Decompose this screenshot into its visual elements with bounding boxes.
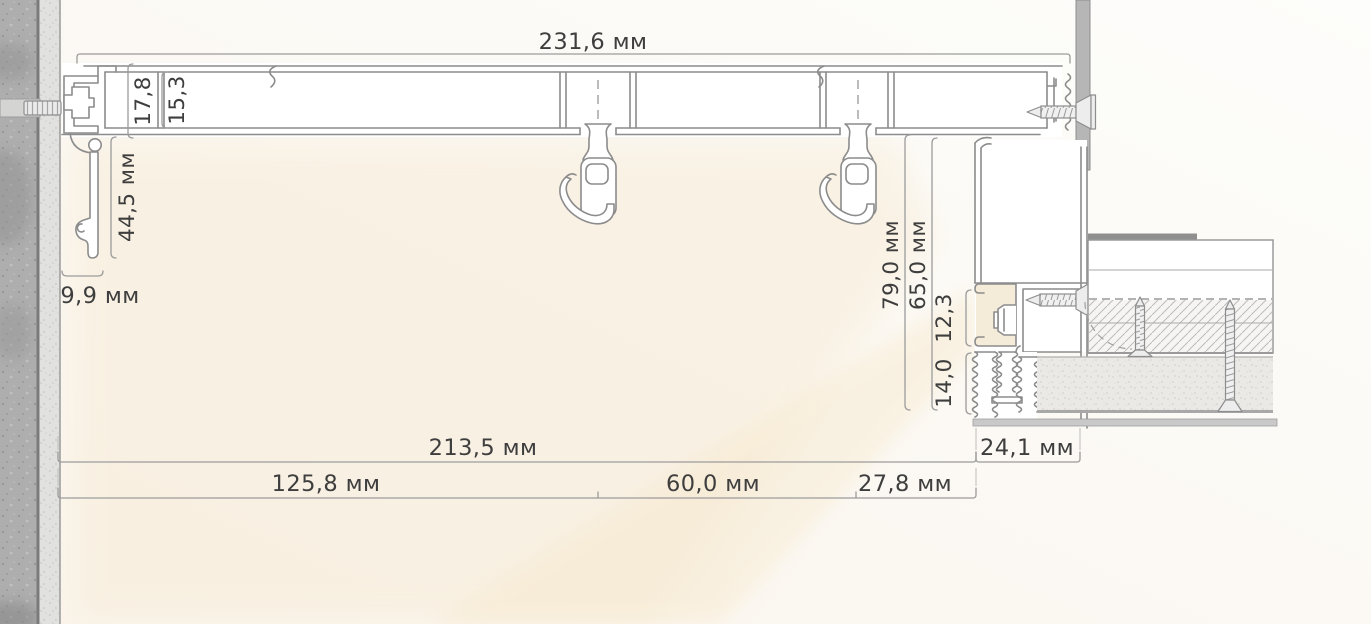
dim-right-drop-outer: 79,0 мм [879, 220, 904, 310]
wall-anchor [0, 99, 61, 117]
curtain-track-profile [62, 63, 1062, 137]
led-niche [975, 284, 1016, 346]
dim-lower-trim-height: 14,0 [932, 358, 957, 407]
dim-span-right: 27,8 мм [858, 471, 952, 497]
dim-soffit-width: 24,1 мм [980, 435, 1074, 461]
dim-span-mid: 60,0 мм [666, 471, 760, 497]
led-module [994, 305, 1016, 335]
bottom-flange [973, 419, 1277, 426]
batten-hatch [1089, 300, 1272, 352]
dim-span-left: 125,8 мм [272, 471, 381, 497]
dim-right-drop-inner: 65,0 мм [906, 220, 931, 310]
ceiling-box [1085, 234, 1273, 354]
dim-bottom-span-total: 213,5 мм [429, 435, 538, 461]
exterior-wall [0, 0, 60, 624]
dim-wall-trim-width: 9,9 мм [60, 283, 139, 309]
technical-drawing-canvas: 231,6 мм 17,8 15,3 44,5 мм 9,9 мм 79,0 м… [0, 0, 1371, 624]
plaster-layer [40, 0, 61, 624]
dim-track-total-width: 231,6 мм [539, 29, 648, 55]
dim-track-height-outer: 17,8 [131, 76, 156, 125]
dim-led-niche-height: 12,3 [932, 293, 957, 342]
dim-track-height-inner: 15,3 [165, 75, 190, 124]
section-drawing: 231,6 мм 17,8 15,3 44,5 мм 9,9 мм 79,0 м… [0, 0, 1371, 624]
dim-wall-trim-drop: 44,5 мм [115, 152, 140, 242]
plaster-trim-strips [973, 352, 1040, 420]
